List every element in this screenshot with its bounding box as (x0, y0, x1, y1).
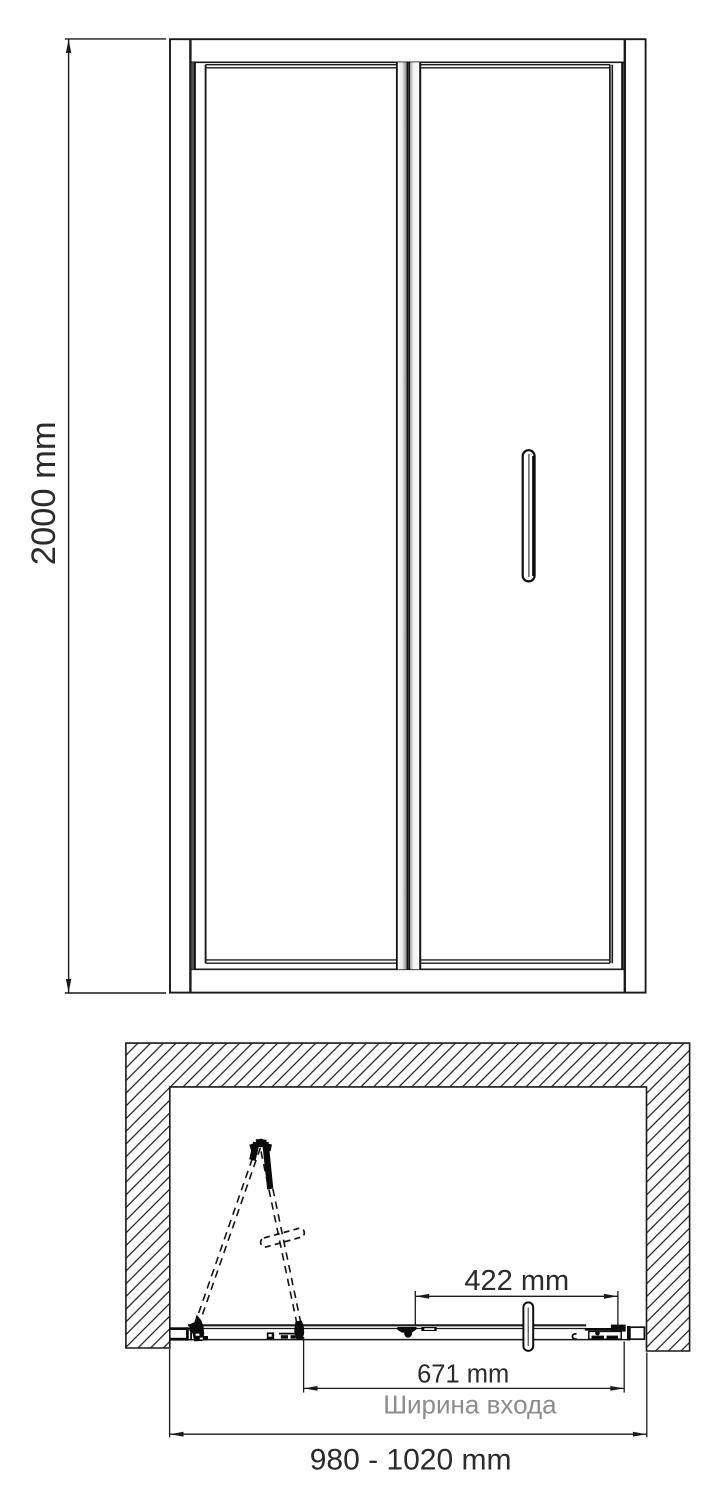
svg-text:2000 mm: 2000 mm (25, 421, 63, 565)
svg-text:980 - 1020 mm: 980 - 1020 mm (310, 1444, 512, 1477)
svg-text:422 mm: 422 mm (464, 1265, 569, 1297)
svg-text:Ширина входа: Ширина входа (383, 1389, 557, 1419)
svg-text:671 mm: 671 mm (417, 1360, 509, 1388)
